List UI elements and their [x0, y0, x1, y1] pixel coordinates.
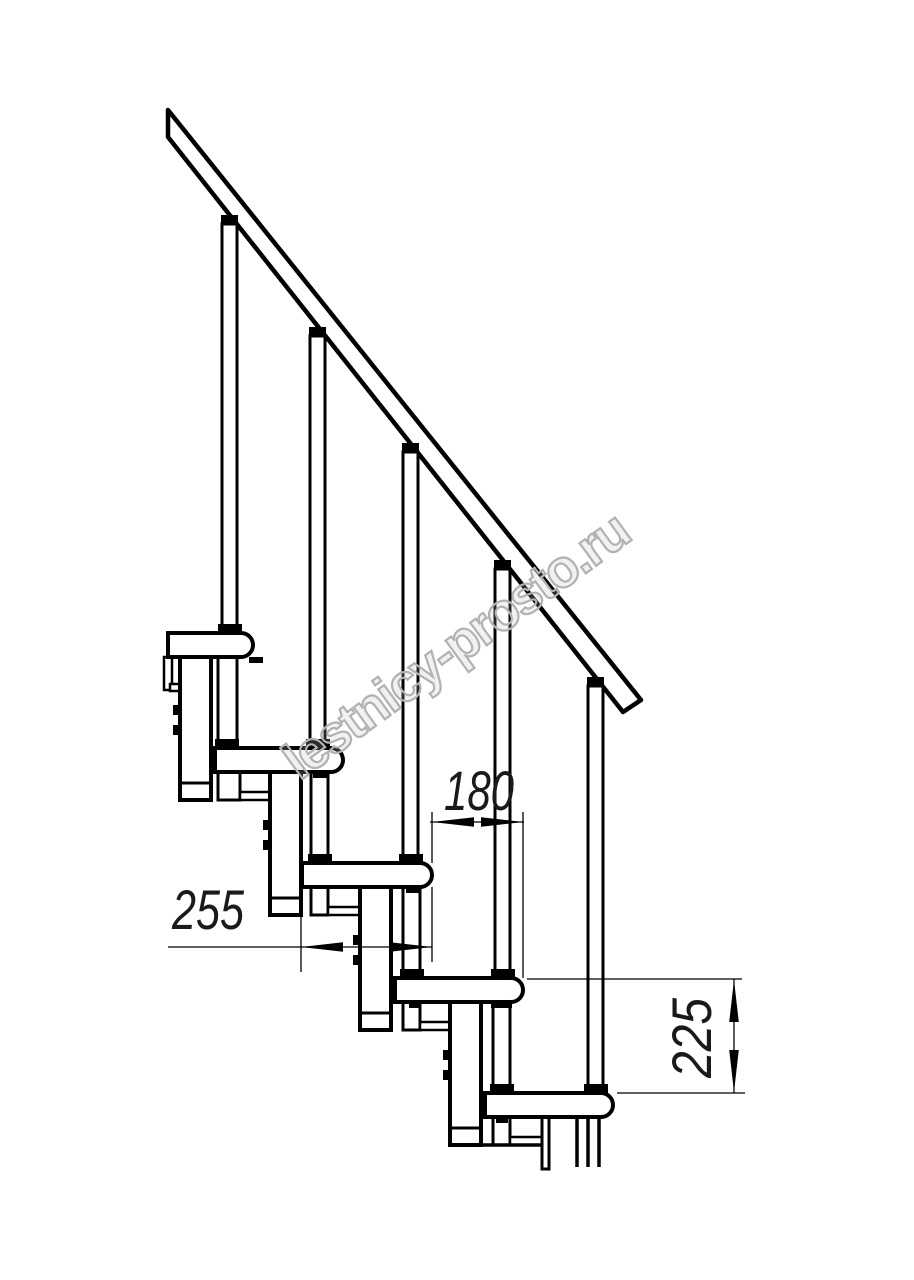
baluster-top-connector: [309, 327, 326, 337]
tread: [395, 978, 523, 1002]
baluster-top-connector: [221, 215, 238, 225]
support-module: [263, 772, 301, 915]
dimension-label-tread-length: 255: [171, 878, 244, 941]
arrow-up-icon: [729, 980, 739, 1022]
baluster: [221, 215, 238, 633]
tread: [168, 633, 253, 657]
support-module: [353, 887, 391, 1030]
tread: [485, 1093, 613, 1117]
staircase-drawing-svg: 180 255 225: [0, 0, 914, 1280]
arrow-left-icon: [301, 942, 343, 952]
baluster: [402, 443, 419, 863]
dimension-label-step-rise: 225: [660, 997, 723, 1079]
dimension-step-rise: 225: [527, 979, 745, 1093]
tread: [302, 863, 432, 887]
staircase-side-view-drawing: 180 255 225 lestnicy-prosto.ru: [0, 0, 914, 1280]
support-module: [443, 1002, 481, 1145]
support-module: [173, 657, 211, 800]
baluster: [309, 327, 326, 748]
baluster-top-connector: [587, 677, 604, 687]
baluster-top-connector: [494, 560, 511, 570]
dimension-label-step-run: 180: [444, 759, 514, 822]
tread: [215, 748, 343, 772]
baluster-top-connector: [402, 443, 419, 453]
arrow-down-icon: [729, 1050, 739, 1092]
baluster: [587, 677, 604, 1093]
